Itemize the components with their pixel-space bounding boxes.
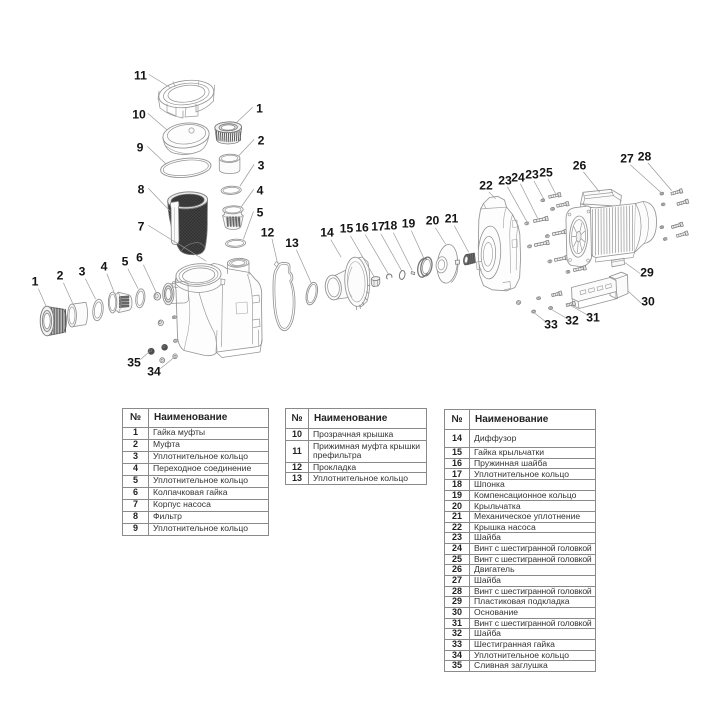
svg-text:32: 32 bbox=[565, 314, 579, 328]
svg-text:27: 27 bbox=[620, 152, 634, 166]
svg-text:2: 2 bbox=[57, 269, 64, 283]
svg-text:19: 19 bbox=[402, 217, 416, 231]
svg-text:35: 35 bbox=[127, 356, 141, 370]
svg-text:8: 8 bbox=[138, 183, 145, 197]
svg-text:7: 7 bbox=[138, 220, 145, 234]
svg-text:16: 16 bbox=[355, 221, 369, 235]
svg-text:20: 20 bbox=[426, 214, 440, 228]
svg-text:31: 31 bbox=[586, 311, 600, 325]
svg-text:13: 13 bbox=[285, 236, 299, 250]
svg-text:5: 5 bbox=[257, 206, 264, 220]
svg-text:21: 21 bbox=[445, 212, 459, 226]
svg-text:2: 2 bbox=[258, 134, 265, 148]
svg-text:4: 4 bbox=[257, 184, 264, 198]
svg-text:14: 14 bbox=[320, 226, 334, 240]
svg-text:5: 5 bbox=[122, 255, 129, 269]
svg-text:23: 23 bbox=[525, 168, 539, 182]
svg-text:24: 24 bbox=[511, 171, 525, 185]
svg-text:29: 29 bbox=[640, 266, 654, 280]
svg-text:22: 22 bbox=[479, 179, 493, 193]
svg-text:28: 28 bbox=[638, 150, 652, 164]
svg-text:1: 1 bbox=[256, 102, 263, 116]
svg-text:23: 23 bbox=[498, 174, 512, 188]
svg-text:15: 15 bbox=[340, 222, 354, 236]
svg-text:1: 1 bbox=[32, 275, 39, 289]
svg-text:30: 30 bbox=[641, 295, 655, 309]
svg-text:4: 4 bbox=[101, 260, 108, 274]
svg-text:9: 9 bbox=[137, 141, 144, 155]
svg-text:3: 3 bbox=[258, 159, 265, 173]
svg-text:3: 3 bbox=[79, 265, 86, 279]
svg-text:25: 25 bbox=[539, 166, 553, 180]
svg-text:12: 12 bbox=[261, 226, 275, 240]
svg-text:34: 34 bbox=[147, 365, 161, 379]
svg-text:18: 18 bbox=[384, 219, 398, 233]
svg-text:10: 10 bbox=[132, 108, 146, 122]
svg-text:26: 26 bbox=[573, 159, 587, 173]
svg-text:33: 33 bbox=[544, 318, 558, 332]
svg-text:6: 6 bbox=[136, 251, 143, 265]
svg-text:11: 11 bbox=[134, 69, 147, 83]
